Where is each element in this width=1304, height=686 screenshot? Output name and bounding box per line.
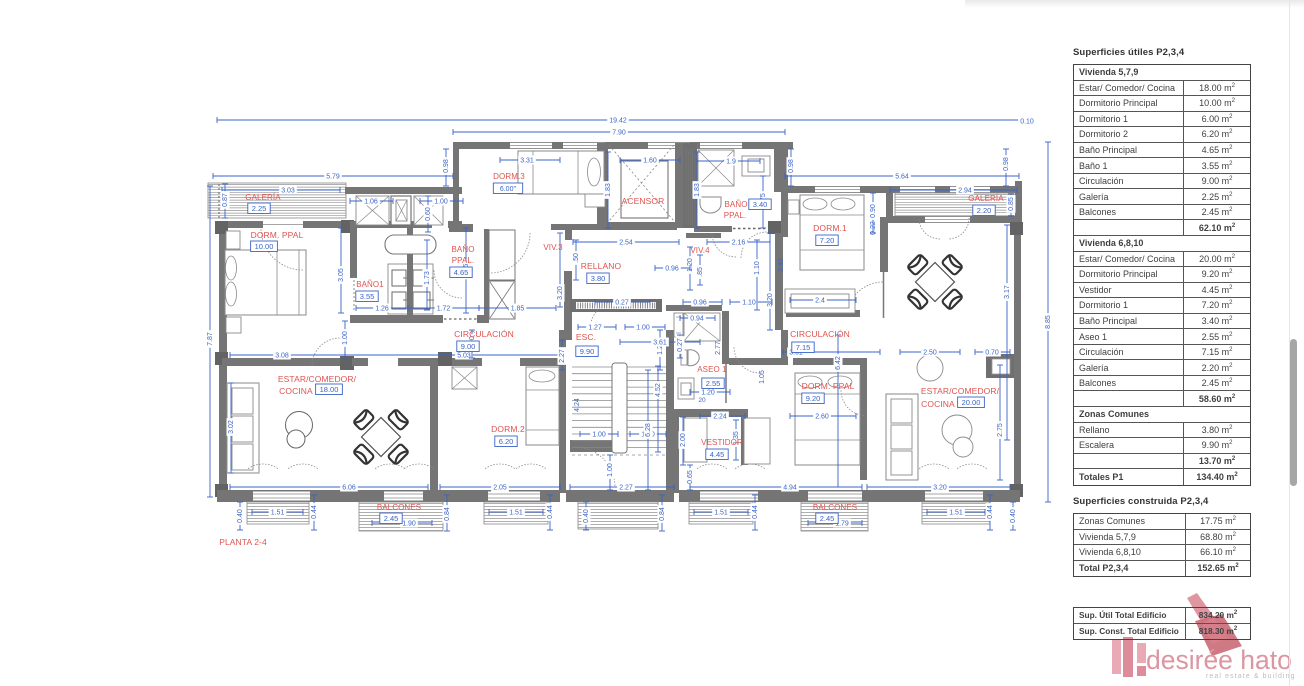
svg-text:0.98: 0.98: [788, 159, 795, 173]
svg-text:0.22: 0.22: [870, 221, 877, 235]
svg-text:0.44: 0.44: [547, 505, 554, 519]
svg-text:3.55: 3.55: [360, 292, 375, 301]
svg-text:CIRCULACIÓN: CIRCULACIÓN: [454, 329, 514, 339]
svg-text:1.26: 1.26: [375, 306, 389, 313]
svg-text:2.05: 2.05: [493, 485, 507, 492]
svg-text:3.03: 3.03: [281, 188, 295, 195]
svg-text:0.40: 0.40: [1010, 509, 1017, 523]
svg-text:1.60: 1.60: [643, 158, 657, 165]
svg-text:0.96: 0.96: [693, 300, 707, 307]
svg-text:0.84: 0.84: [444, 507, 451, 521]
svg-text:3.31: 3.31: [520, 158, 534, 165]
svg-text:1.00: 1.00: [434, 199, 448, 206]
svg-text:0.84: 0.84: [659, 507, 666, 521]
svg-text:.50: .50: [573, 253, 580, 263]
svg-text:0.44: 0.44: [987, 505, 994, 519]
svg-text:2.24: 2.24: [713, 414, 727, 421]
svg-text:5.79: 5.79: [326, 174, 340, 181]
svg-text:0.96: 0.96: [665, 266, 679, 273]
svg-text:19.42: 19.42: [609, 118, 627, 125]
svg-text:0.65: 0.65: [687, 470, 694, 484]
svg-text:7.87: 7.87: [207, 332, 214, 346]
svg-text:3.80: 3.80: [591, 274, 606, 283]
svg-text:DORM. PPAL: DORM. PPAL: [251, 230, 304, 240]
svg-text:6.42: 6.42: [835, 356, 842, 370]
svg-text:GALERÍA: GALERÍA: [245, 193, 281, 202]
svg-text:2.77: 2.77: [715, 341, 722, 355]
svg-text:1.51: 1.51: [509, 510, 523, 517]
svg-text:2.25: 2.25: [252, 204, 267, 213]
svg-text:BAÑO: BAÑO: [451, 245, 474, 254]
svg-text:0.70: 0.70: [985, 350, 999, 357]
svg-text:4.94: 4.94: [783, 485, 797, 492]
svg-text:1.90: 1.90: [402, 521, 416, 528]
svg-text:20: 20: [698, 397, 706, 404]
svg-text:0.44: 0.44: [311, 505, 318, 519]
svg-text:2.27: 2.27: [619, 485, 633, 492]
svg-text:VIV.3: VIV.3: [543, 243, 563, 252]
svg-text:1.51: 1.51: [271, 510, 285, 517]
svg-text:COCINA: COCINA: [279, 386, 313, 396]
svg-text:ESTAR/COMEDOR/: ESTAR/COMEDOR/: [921, 386, 1000, 396]
svg-text:2.27: 2.27: [559, 349, 566, 363]
svg-text:5.64: 5.64: [895, 174, 909, 181]
svg-text:9.20: 9.20: [806, 394, 821, 403]
svg-text:GALERÍA: GALERÍA: [968, 194, 1004, 203]
svg-text:8.85: 8.85: [1045, 315, 1052, 329]
svg-text:1.83: 1.83: [694, 183, 701, 197]
svg-text:ESTAR/COMEDOR/: ESTAR/COMEDOR/: [278, 374, 357, 384]
svg-text:2.45: 2.45: [384, 514, 399, 523]
svg-text:3.40: 3.40: [753, 200, 768, 209]
svg-text:3.05: 3.05: [338, 268, 345, 282]
svg-text:0.87: 0.87: [222, 193, 229, 207]
svg-text:2.75: 2.75: [997, 423, 1004, 437]
svg-text:0.40: 0.40: [237, 509, 244, 523]
svg-text:1.00: 1.00: [607, 463, 614, 477]
svg-text:2.60: 2.60: [815, 414, 829, 421]
svg-text:DORM. PPAL: DORM. PPAL: [802, 381, 855, 391]
svg-text:0.98: 0.98: [443, 159, 450, 173]
svg-text:9.90: 9.90: [580, 347, 595, 356]
svg-text:0.94: 0.94: [690, 316, 704, 323]
svg-text:2.16: 2.16: [732, 240, 746, 247]
svg-text:1.00: 1.00: [342, 331, 349, 345]
svg-text:PLANTA 2-4: PLANTA 2-4: [219, 537, 267, 547]
svg-text:CIRCULACIÓN: CIRCULACIÓN: [790, 329, 850, 339]
svg-text:1.9: 1.9: [726, 159, 736, 166]
svg-text:BAÑO: BAÑO: [724, 200, 747, 209]
svg-text:2.55: 2.55: [706, 379, 721, 388]
svg-text:PPAL.: PPAL.: [724, 211, 747, 220]
svg-text:0.85: 0.85: [1008, 197, 1015, 211]
svg-text:9.00: 9.00: [461, 342, 476, 351]
svg-text:3.17: 3.17: [1004, 285, 1011, 299]
svg-text:ESC.: ESC.: [576, 332, 596, 342]
svg-text:1.20: 1.20: [701, 390, 715, 397]
svg-text:6.20: 6.20: [499, 437, 514, 446]
svg-text:1.73: 1.73: [424, 271, 431, 285]
svg-text:ACENSOR: ACENSOR: [622, 196, 665, 206]
svg-text:DORM.2: DORM.2: [491, 424, 525, 434]
svg-text:BALCONES: BALCONES: [813, 503, 857, 512]
svg-text:0.90: 0.90: [870, 204, 877, 218]
svg-text:20.00: 20.00: [962, 398, 981, 407]
svg-text:0.40: 0.40: [583, 509, 590, 523]
svg-text:3.08: 3.08: [275, 353, 289, 360]
svg-text:6.06: 6.06: [342, 485, 356, 492]
svg-text:PPAL.: PPAL.: [452, 256, 475, 265]
svg-text:1.83: 1.83: [605, 183, 612, 197]
svg-text:0.44: 0.44: [752, 505, 759, 519]
svg-text:VIV.4: VIV.4: [690, 246, 710, 255]
svg-text:DORM.3: DORM.3: [493, 172, 525, 181]
svg-text:2.00: 2.00: [680, 433, 687, 447]
svg-text:2.92: 2.92: [778, 258, 785, 272]
svg-text:1.00: 1.00: [636, 325, 650, 332]
svg-text:6.28: 6.28: [645, 423, 652, 437]
svg-text:BAÑO1: BAÑO1: [356, 280, 384, 289]
svg-text:0.27: 0.27: [615, 300, 629, 307]
svg-text:1.10: 1.10: [742, 300, 756, 307]
svg-text:BALCONES: BALCONES: [377, 503, 421, 512]
svg-text:7.90: 7.90: [612, 130, 626, 137]
svg-text:1.27: 1.27: [588, 325, 602, 332]
svg-text:3.20: 3.20: [933, 485, 947, 492]
svg-text:4.24: 4.24: [574, 398, 581, 412]
svg-text:4.52: 4.52: [655, 383, 662, 397]
svg-text:0.98: 0.98: [1003, 157, 1010, 171]
svg-text:2.50: 2.50: [923, 350, 937, 357]
svg-text:18.00: 18.00: [320, 385, 339, 394]
svg-text:RELLANO: RELLANO: [581, 261, 622, 271]
svg-text:3.02: 3.02: [228, 420, 235, 434]
svg-text:2.20: 2.20: [977, 206, 992, 215]
svg-text:4.65: 4.65: [454, 268, 469, 277]
svg-text:0.10: 0.10: [1020, 119, 1034, 126]
svg-text:3.20: 3.20: [557, 286, 564, 300]
svg-text:1.72: 1.72: [437, 306, 451, 313]
svg-text:3.20: 3.20: [767, 293, 774, 307]
svg-text:1.10: 1.10: [754, 261, 761, 275]
svg-text:VESTIDOR: VESTIDOR: [701, 438, 743, 447]
svg-text:2.54: 2.54: [619, 240, 633, 247]
svg-text:DORM.1: DORM.1: [813, 223, 847, 233]
svg-text:1.05: 1.05: [759, 370, 766, 384]
svg-text:.85: .85: [697, 267, 704, 277]
svg-text:5.03: 5.03: [457, 353, 471, 360]
svg-text:10.00: 10.00: [255, 242, 274, 251]
svg-text:7.20: 7.20: [820, 236, 835, 245]
svg-text:ASEO 1: ASEO 1: [697, 365, 727, 374]
svg-text:1.06: 1.06: [364, 199, 378, 206]
svg-text:0.27: 0.27: [677, 338, 684, 352]
svg-text:1.85: 1.85: [511, 306, 525, 313]
svg-text:2.4: 2.4: [815, 298, 825, 305]
svg-text:6.00'': 6.00'': [500, 186, 516, 193]
svg-text:2.45: 2.45: [820, 514, 835, 523]
svg-text:1.51: 1.51: [949, 510, 963, 517]
svg-text:3.61: 3.61: [653, 340, 667, 347]
svg-text:0.60: 0.60: [425, 207, 432, 221]
svg-text:1.00: 1.00: [592, 432, 606, 439]
svg-text:4.45: 4.45: [710, 450, 725, 459]
svg-text:1.51: 1.51: [714, 510, 728, 517]
svg-text:7.15: 7.15: [796, 343, 811, 352]
svg-text:COCINA: COCINA: [921, 399, 955, 409]
